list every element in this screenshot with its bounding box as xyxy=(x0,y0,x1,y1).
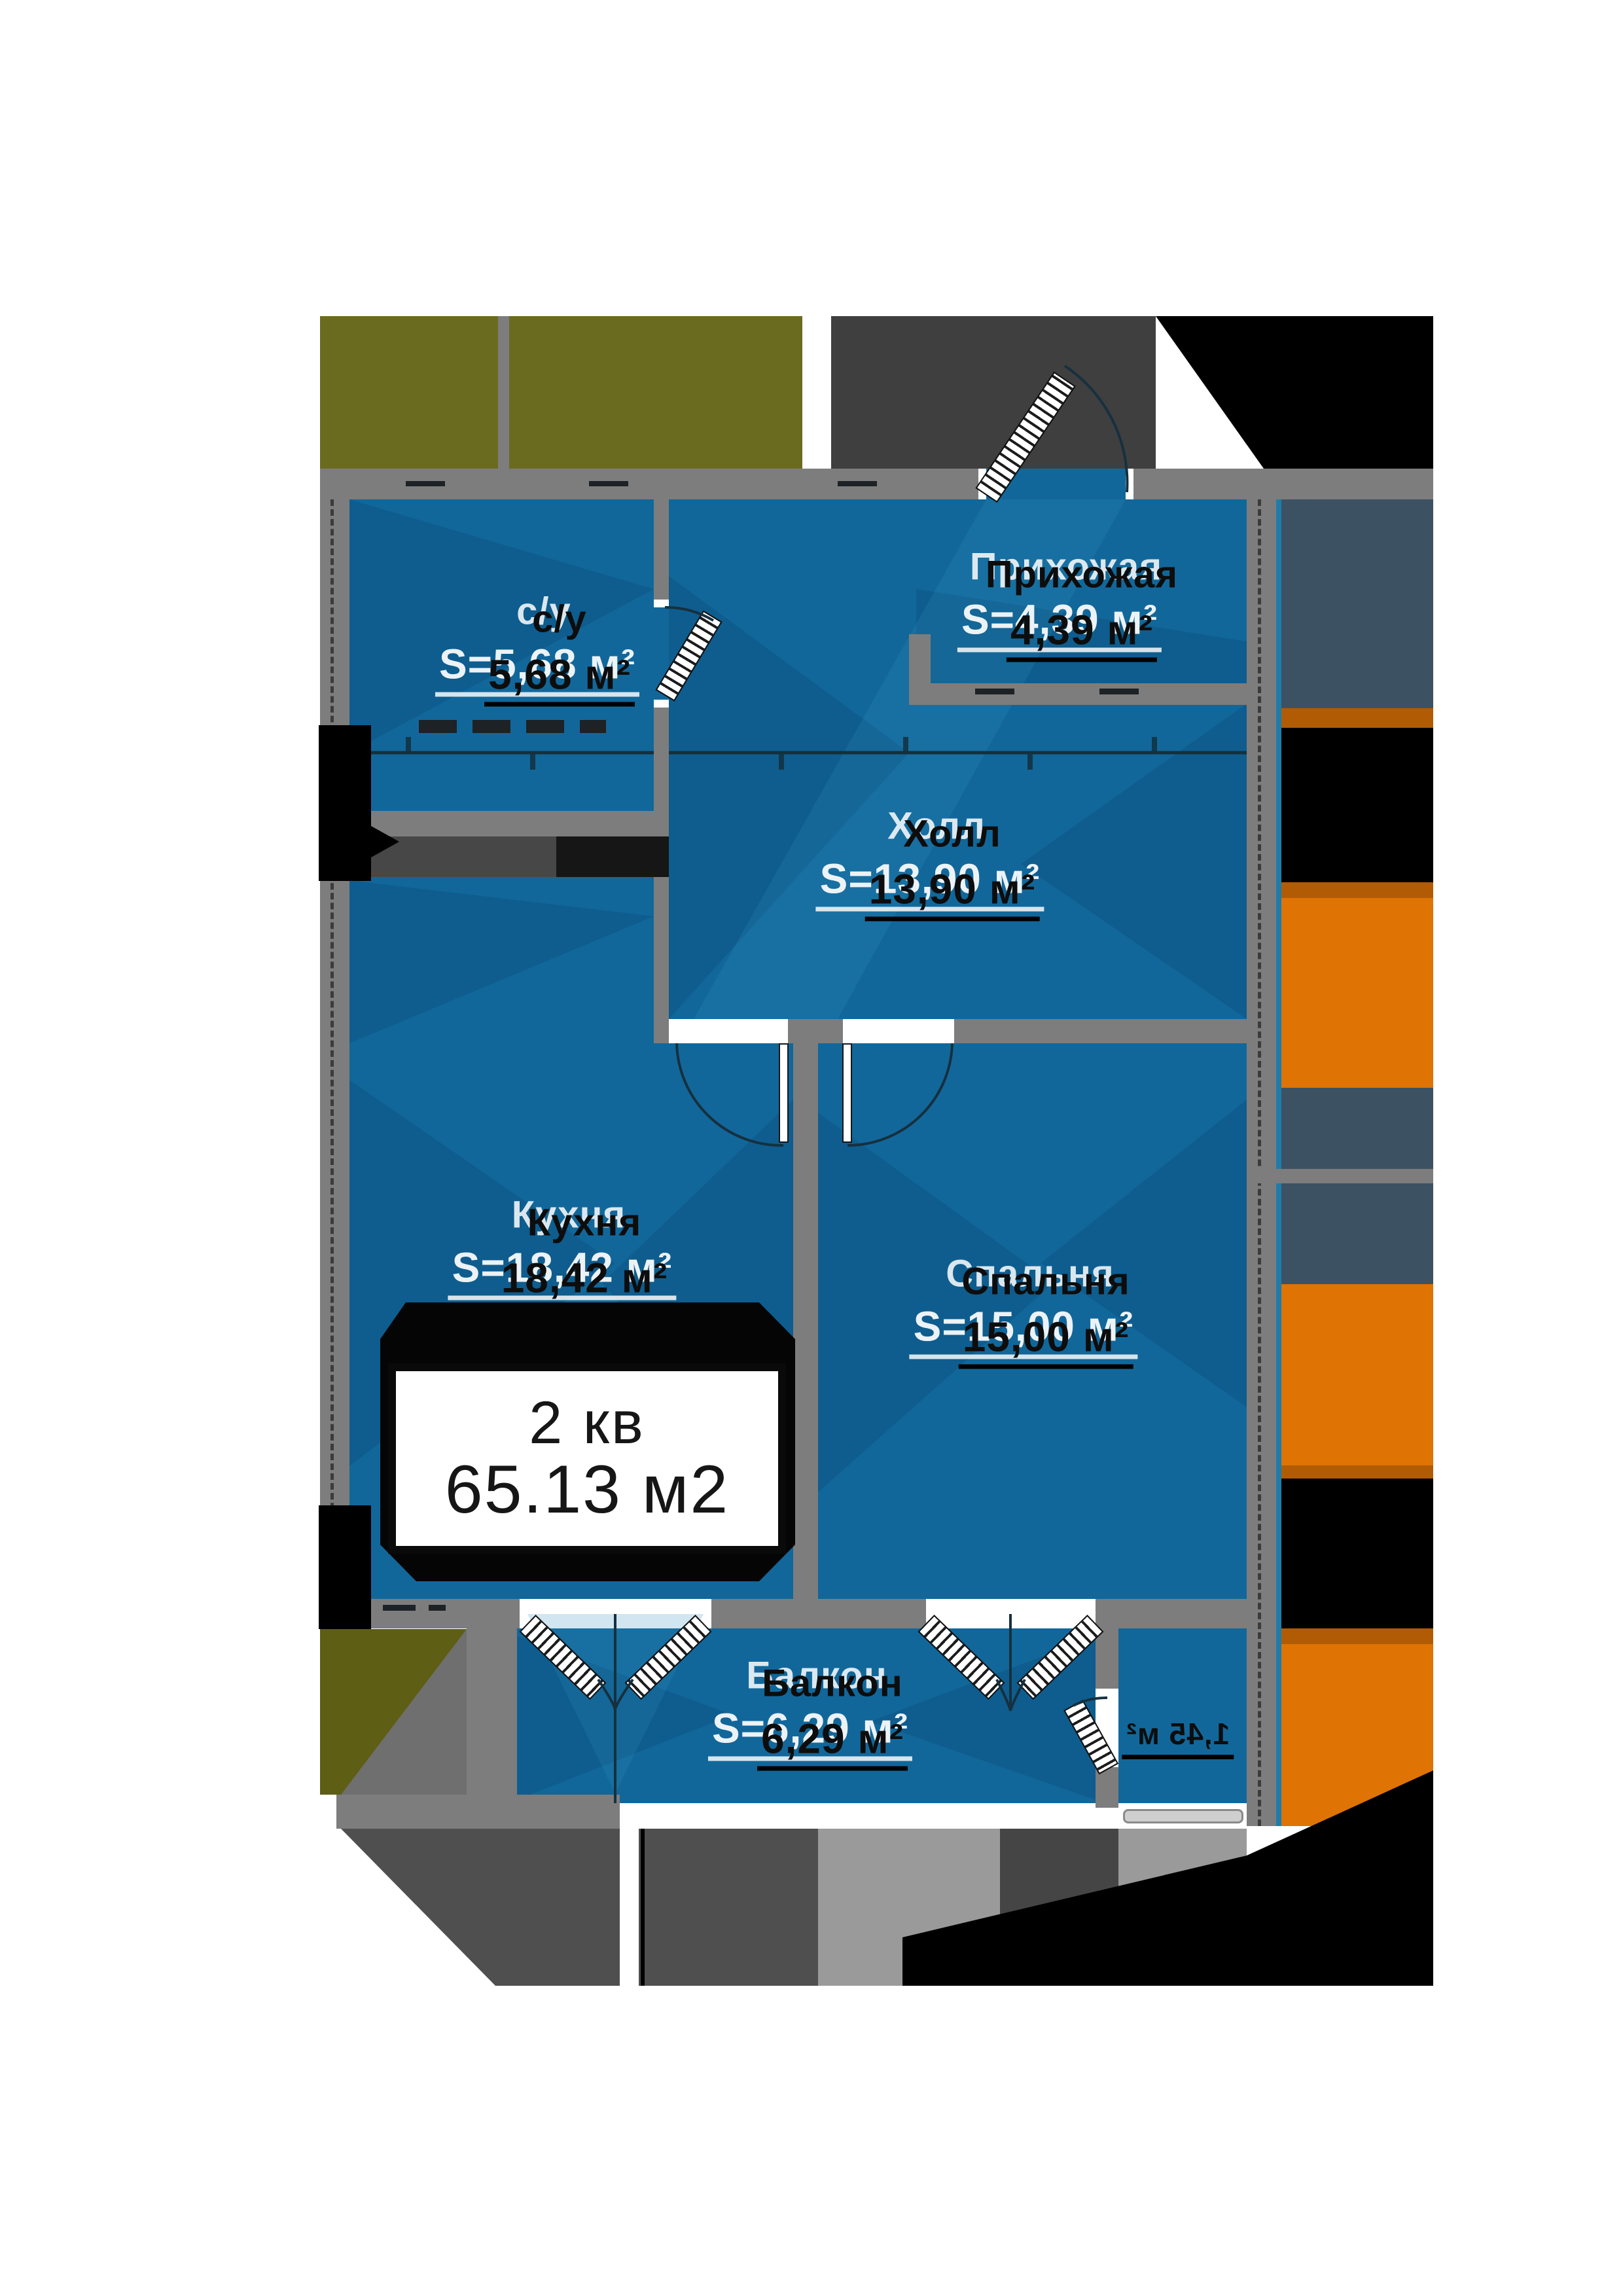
apartment-number: 2 кв xyxy=(529,1391,645,1455)
apartment-total-area: 65.13 м2 xyxy=(445,1454,730,1526)
info-box-banner xyxy=(0,0,1623,2296)
apartment-info-box: 2 кв 65.13 м2 xyxy=(388,1363,786,1554)
floor-plan-canvas: с/у S=5,68 м² 5,68 м² Прихожая S=4,39 м²… xyxy=(0,0,1623,2296)
